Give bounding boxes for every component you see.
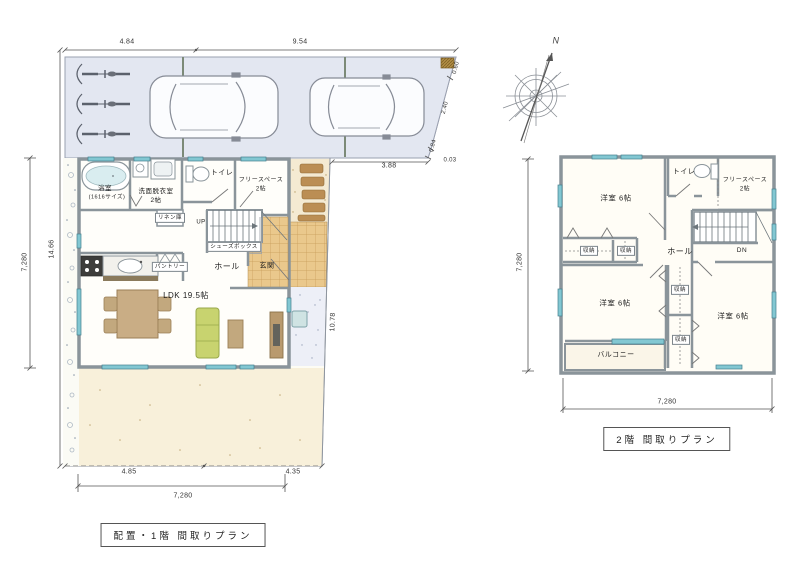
- room-label-free-space-size-2f: 2帖: [740, 186, 750, 194]
- dim-bot-w1: 4.85: [122, 469, 137, 478]
- dim-house-depth: 7,280: [22, 252, 31, 271]
- dim-2f-width: 7,280: [657, 399, 676, 408]
- dim-e4: 0.03: [444, 157, 457, 165]
- room-label-washroom-size: 2帖: [150, 197, 161, 205]
- dim-top-w1: 4.84: [120, 39, 135, 48]
- room-label-free-space-2f: フリースペース: [723, 177, 767, 185]
- stairs-down-label: DN: [737, 247, 747, 255]
- compass-north-label: N: [553, 35, 560, 46]
- closet-label-b: 収納: [617, 246, 635, 256]
- dim-house-width: 7,280: [173, 493, 192, 502]
- meter-box-icon: [441, 58, 454, 68]
- room-label-ldk: LDK 19.5帖: [163, 291, 209, 301]
- room-label-washroom: 洗面脱衣室: [139, 188, 174, 196]
- room-label-pantry: パントリー: [152, 262, 188, 272]
- closet-label-d: 収納: [672, 335, 690, 345]
- car-icon: [150, 73, 278, 141]
- room-label-balcony: バルコニー: [597, 352, 634, 361]
- dim-road-cut: 3.88: [382, 163, 397, 172]
- compass-icon: [503, 53, 569, 143]
- room-label-free-space-size-1f: 2帖: [256, 186, 266, 194]
- room-label-entrance: 玄関: [260, 263, 275, 272]
- room-label-bedroom-se: 洋室 6帖: [717, 311, 748, 320]
- room-label-bedroom-nw: 洋室 6帖: [600, 193, 631, 202]
- room-label-hall-2f: ホール: [667, 247, 693, 257]
- dim-bot-w2: 4.35: [286, 469, 301, 478]
- closet-label-c: 収納: [671, 285, 689, 295]
- room-label-bath: 浴室: [98, 185, 112, 193]
- stairs-up-label: UP: [196, 219, 205, 227]
- dim-east-len: 10.78: [329, 312, 338, 331]
- room-label-hall-1f: ホール: [214, 262, 240, 272]
- second-floor-title: 2階 間取りプラン: [603, 427, 730, 451]
- floor-plan-drawing: [0, 0, 800, 563]
- dim-site-depth: 14.66: [49, 239, 58, 258]
- room-label-free-space-1f: フリースペース: [239, 177, 283, 185]
- room-label-bath-size: (1616サイズ): [89, 195, 126, 202]
- room-label-toilet-1f: トイレ: [211, 170, 234, 179]
- closet-label-a: 収納: [580, 246, 598, 256]
- dim-top-w2: 9.54: [293, 39, 308, 48]
- room-label-bedroom-sw: 洋室 6帖: [599, 298, 630, 307]
- room-label-linen: リネン庫: [155, 213, 185, 223]
- room-label-toilet-2f: トイレ: [673, 169, 696, 178]
- floor-plan-page: N 4.84 9.54 14.66 7,280 3.88 0.60 2.40 0…: [0, 0, 800, 563]
- dim-2f-depth: 7,280: [517, 252, 526, 271]
- first-floor-title: 配置・1階 間取りプラン: [101, 523, 266, 547]
- shoe-box-label: シューズボックス: [207, 242, 261, 252]
- car-icon: [310, 75, 424, 139]
